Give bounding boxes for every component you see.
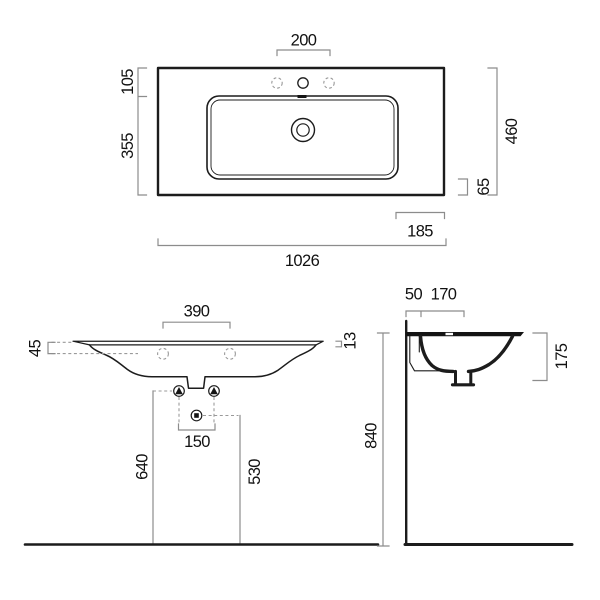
dim-label-edge-height: 45: [27, 340, 45, 358]
dim-label-front-depth: 105: [119, 69, 137, 95]
dim-bracket-hole-spacing: [163, 322, 230, 328]
side-section-view: 50 170 175 840: [363, 286, 573, 547]
dim-bracket-faucet-spacing: [277, 50, 330, 56]
dim-bracket-total-depth: [488, 68, 497, 195]
faucet-hole-center-symbol: [298, 78, 308, 88]
dim-bracket-anchor-spacing: [179, 424, 216, 430]
dim-label-rear-gap: 65: [475, 178, 493, 196]
fixing-point-left-triangle-icon: [175, 387, 183, 394]
drain-anchor-square-icon: [194, 413, 199, 418]
section-rim-fill: [406, 332, 524, 336]
dim-bracket-edge-height: [48, 342, 55, 353]
front-hole-right-symbol: [225, 348, 236, 359]
dim-label-drain-offset: 170: [431, 286, 457, 304]
front-bowl-profile: [90, 345, 317, 388]
technical-drawing-canvas: 200 105 355 460 65 185 1026 390 45 13: [0, 0, 600, 600]
top-view-bowl-inner-outline: [211, 100, 394, 175]
dim-bracket-wall-drain-offsets: [406, 311, 464, 317]
dim-label-bowl-depth: 355: [119, 133, 137, 159]
drain-inner-symbol: [297, 124, 309, 136]
dim-bracket-side-offset: [396, 213, 445, 219]
top-view: 200 105 355 460 65 185 1026: [119, 32, 521, 271]
dim-label-hole-spacing: 390: [184, 303, 210, 321]
front-hole-left-symbol: [158, 348, 169, 359]
dim-bracket-depths-left: [138, 68, 147, 195]
top-view-basin-outline: [158, 68, 444, 195]
drain-outer-symbol: [292, 119, 315, 142]
section-faucet-hole-slot: [446, 333, 454, 335]
section-bowl-wall-left: [421, 336, 454, 371]
dim-label-faucet-spacing: 200: [291, 32, 317, 50]
dim-label-side-offset: 185: [407, 223, 433, 241]
dim-label-total-width: 1026: [285, 252, 320, 270]
dim-label-basin-height: 175: [553, 343, 571, 369]
section-bowl-wall-right: [469, 336, 513, 371]
dim-label-anchor-spacing: 150: [184, 433, 210, 451]
dim-label-rim-height: 840: [363, 423, 381, 449]
washbasin-drawing: 200 105 355 460 65 185 1026 390 45 13: [0, 0, 600, 600]
fixing-point-right-triangle-icon: [210, 387, 218, 394]
dim-label-wall-offset: 50: [405, 286, 423, 304]
dim-label-total-depth: 460: [503, 118, 521, 144]
faucet-hole-left-optional-symbol: [272, 78, 282, 88]
section-drain-walls: [456, 371, 471, 383]
dim-label-drain-height: 530: [246, 459, 264, 485]
dim-label-rim-thickness: 13: [342, 332, 360, 350]
dim-label-fixing-height: 640: [134, 454, 152, 480]
front-view: 390 45 13 150 640 530: [25, 303, 378, 545]
front-rim-outline: [73, 341, 323, 345]
top-view-bowl-outer-outline: [207, 96, 398, 179]
faucet-hole-right-optional-symbol: [324, 78, 334, 88]
dim-bracket-basin-height: [533, 333, 547, 381]
dim-bracket-rear-gap: [459, 179, 468, 195]
dim-bracket-total-width: [158, 239, 446, 246]
overflow-slot-symbol: [298, 95, 307, 98]
